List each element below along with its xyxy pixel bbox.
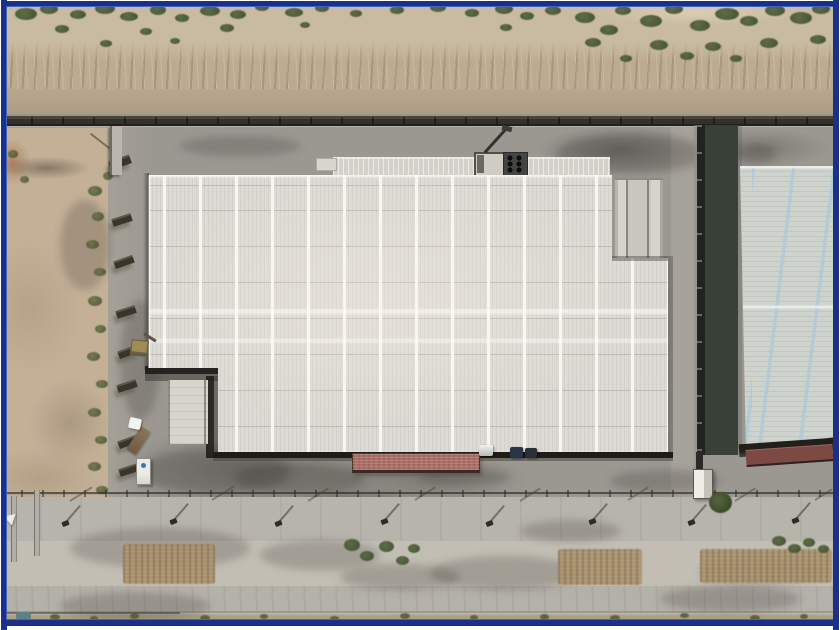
parked-car-blue xyxy=(510,447,523,458)
frame-border-bottom xyxy=(0,619,840,630)
notch-loading-ramp xyxy=(168,380,208,444)
main-warehouse-roof xyxy=(148,175,668,452)
dirt-road xyxy=(0,89,840,116)
red-dock-canopy xyxy=(352,453,480,473)
dirt-lot xyxy=(0,128,108,497)
truck-cab xyxy=(128,417,142,430)
parked-car-white xyxy=(479,445,493,456)
north-canopy-segment xyxy=(316,158,337,171)
utility-pole-1 xyxy=(11,496,17,562)
main-roof-east-shadow xyxy=(668,256,673,454)
excavator-body xyxy=(130,339,148,354)
gate-bush xyxy=(709,492,732,513)
portable-toilet xyxy=(136,458,151,485)
parked-car-dark xyxy=(525,448,537,458)
frame-border-left xyxy=(0,0,7,630)
street-median xyxy=(0,541,840,586)
aerial-photo-screenshot xyxy=(0,0,840,630)
north-canopy xyxy=(333,157,610,178)
gate-wall-panel xyxy=(110,126,122,175)
frame-border-right xyxy=(833,0,840,630)
utility-pole-2 xyxy=(34,490,40,556)
right-warehouse-shadow-wall xyxy=(694,125,742,455)
street-lower-lane xyxy=(0,586,840,613)
frame-border-top xyxy=(0,0,840,7)
main-roof-step-shadow xyxy=(612,256,668,261)
loading-ramp xyxy=(615,178,663,266)
scrubland-strip xyxy=(0,0,840,93)
guard-booth xyxy=(693,469,713,499)
right-warehouse-roof xyxy=(738,166,833,452)
hvac-unit xyxy=(503,152,528,177)
